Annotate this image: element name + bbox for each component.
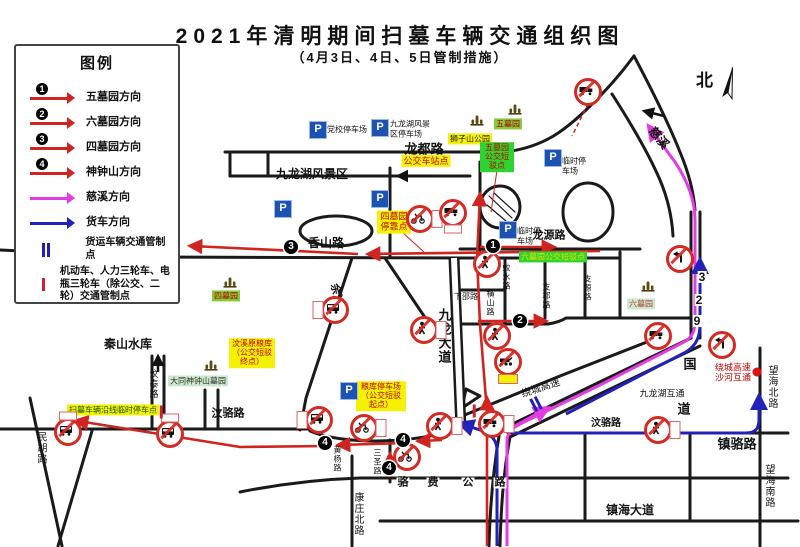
route-marker: 1 [486, 239, 500, 253]
legend-route-label: 神钟山方向 [86, 163, 141, 179]
prohibition-sign-ped [483, 322, 511, 350]
tomb-icon [508, 102, 522, 120]
tomb-icon [470, 113, 484, 131]
parking-label: 九龙湖风景 区停车场 [390, 119, 438, 138]
vehicle-control-point [160, 406, 163, 419]
route-number-badge: 2 [36, 108, 48, 120]
road-label: 九龙湖互通 [639, 390, 684, 399]
road-label: 3 [698, 271, 707, 283]
prohibition-sign-bus [305, 406, 333, 434]
road-label: 镇海大道 [606, 504, 654, 516]
legend-route-item: 3四墓园方向 [16, 133, 178, 158]
prohibition-sign-cart [494, 348, 522, 376]
sign-side-label [498, 374, 518, 384]
road-label: 国 [682, 358, 697, 371]
road-label: 2 [695, 294, 704, 306]
prohibition-sign-truck [644, 322, 672, 350]
road-label: 支源路 [583, 275, 591, 302]
road-label: 9 [693, 315, 702, 327]
route-marker: 2 [513, 314, 527, 328]
road-label: 九龙湖风景区 [276, 168, 348, 180]
prohibition-sign-ped [473, 250, 501, 278]
road-label: 费 [427, 478, 440, 489]
vehicle-control-icon [42, 278, 45, 291]
route-arrow-icon: 4 [28, 160, 86, 182]
page-subtitle: （4月3日、4日、5日管制措施） [292, 47, 509, 66]
prohibition-sign-bus [321, 296, 349, 324]
route-number-badge: 3 [36, 133, 48, 145]
prohibition-sign-moto [393, 443, 421, 471]
legend-point-item: 机动车、人力三轮车、电瓶三轮车（除公交、二轮）交通管制点 [16, 262, 178, 304]
route-number-badge: 1 [36, 83, 48, 95]
parking-icon: P [371, 119, 389, 137]
parking-icon: P [340, 382, 358, 400]
prohibition-sign-bus [54, 418, 82, 446]
road-label: 路 [494, 478, 507, 489]
sign-side-label [504, 415, 515, 433]
prohibition-sign-ped [410, 316, 438, 344]
parking-icon: P [544, 149, 562, 167]
sign-side-label [376, 419, 387, 437]
area-label: 扫墓车辆沿线临时停车点 [67, 404, 159, 415]
legend-route-item: 1五墓园方向 [16, 83, 178, 108]
legend-point-label: 机动车、人力三轮车、电瓶三轮车（除公交、二轮）交通管制点 [60, 266, 174, 304]
area-label: 六墓园 [627, 298, 655, 309]
road-label: 汶骆路 [591, 419, 621, 429]
tomb-icon [204, 358, 218, 376]
route-marker: 4 [318, 436, 332, 450]
parking-icon: P [371, 190, 389, 208]
road-label: 慈溪 [647, 125, 672, 151]
route-marker: 3 [284, 240, 298, 254]
legend-route-item: 4神钟山方向 [16, 158, 178, 183]
sign-side-label [670, 421, 681, 439]
legend-route-label: 六墓园方向 [86, 113, 141, 129]
sign-side-label [297, 411, 308, 429]
legend-route-label: 货车方向 [86, 213, 130, 229]
sign-side-label [59, 412, 77, 421]
freight-control-point [529, 396, 542, 412]
legend-route-item: 2六墓园方向 [16, 108, 178, 133]
road-label: 秦山水库 [104, 338, 152, 350]
sign-side-label [452, 417, 463, 435]
prohibition-sign-turn [708, 331, 736, 359]
area-label: 粮库停车场（公交短驳起点） [356, 381, 406, 411]
road-label: 下邵路 [454, 293, 478, 301]
compass: 北 [696, 66, 739, 108]
traffic-control-map-page: { "title": "2021年清明期间扫墓车辆交通组织图", "subtit… [0, 0, 800, 547]
tomb-icon [641, 279, 655, 297]
area-label: 五墓园公交短驳点 [480, 142, 514, 172]
legend-point-label: 货运车辆交通管制点 [85, 237, 174, 262]
route-arrow-icon [28, 185, 86, 207]
prohibition-sign-turn [666, 245, 694, 273]
legend-route-label: 四墓园方向 [86, 138, 141, 154]
vehicle-control-point [473, 405, 476, 418]
road-label: 汶泰路 [149, 369, 158, 399]
sign-side-label [161, 414, 179, 423]
road-label: 民胡路 [35, 432, 45, 465]
road-label: 望海北路 [766, 365, 776, 409]
compass-needle-icon [716, 65, 743, 110]
route-marker: 4 [396, 433, 410, 447]
prohibition-sign-truck [478, 410, 506, 438]
legend-title: 图例 [16, 52, 178, 73]
road-label: 横山路 [486, 290, 494, 317]
legend-route-item: 货车方向 [16, 208, 178, 233]
legend-route-label: 慈溪方向 [86, 188, 130, 204]
route-number-badge: 4 [36, 158, 48, 170]
road-label: 望海南路 [763, 464, 773, 508]
route-marker: 4 [382, 461, 396, 475]
road-label: 镇骆路 [717, 438, 756, 451]
tomb-icon [223, 275, 237, 293]
freight-control-icon [42, 243, 50, 257]
legend-route-item: 慈溪方向 [16, 183, 178, 208]
road-label: 蛟水路 [502, 264, 510, 291]
prohibition-sign-moto [350, 414, 378, 442]
parking-icon: P [274, 200, 292, 218]
legend-route-label: 五墓园方向 [86, 88, 141, 104]
interchange-dot [753, 368, 762, 377]
area-label: 公交车站点 [401, 155, 450, 167]
sign-side-label [436, 321, 447, 339]
area-label: 大同神钟山墓园 [168, 375, 228, 386]
prohibition-sign-bus [156, 420, 184, 448]
road-label: 黄杨路 [333, 446, 341, 473]
north-label: 北 [696, 66, 713, 91]
route-arrow-icon: 3 [28, 135, 86, 157]
area-label: 五墓园 [494, 118, 522, 129]
parking-icon: P [309, 121, 327, 139]
parking-icon: P [499, 221, 517, 239]
route-arrow-icon: 1 [28, 85, 86, 107]
parking-label: 临时停 车场 [517, 226, 543, 245]
legend-box: 图例 1五墓园方向2六墓园方向3四墓园方向4神钟山方向慈溪方向货车方向货运车辆交… [14, 44, 180, 304]
route-arrow-icon [28, 210, 86, 232]
legend-point-item: 货运车辆交通管制点 [16, 233, 178, 262]
prohibition-sign-truck [574, 78, 602, 106]
parking-label: 党校停车场 [327, 125, 377, 135]
area-label: 六墓园公交短驳点 [519, 251, 587, 262]
road-label: 骆 [397, 478, 410, 489]
prohibition-sign-ped [426, 412, 454, 440]
sign-side-label [444, 225, 462, 234]
area-label: 汶溪原粮库（公交短驳终点） [229, 338, 275, 368]
sign-side-label [313, 301, 324, 319]
road-label: 康庄北路 [352, 492, 362, 536]
prohibition-sign-ped [644, 416, 672, 444]
road-label: 汶骆路 [212, 409, 245, 420]
prohibition-sign-moto [406, 205, 434, 233]
prohibition-sign-truck [439, 199, 467, 227]
road-label: 公 [462, 478, 475, 489]
road-label: 支郡路 [542, 283, 550, 310]
area-label: 绕城高速沙河互通 [711, 362, 755, 385]
road-label: 道 [676, 403, 691, 416]
road-label: 龙都路 [404, 143, 443, 156]
road-label: 三圣路 [373, 449, 381, 476]
road-label: 香山路 [308, 237, 344, 249]
parking-label: 临时停 车场 [562, 156, 588, 175]
page-title: 2021年清明期间扫墓车辆交通组织图 [176, 20, 625, 50]
road-label: 绕城高速 [520, 378, 561, 400]
route-arrow-icon: 2 [28, 110, 86, 132]
